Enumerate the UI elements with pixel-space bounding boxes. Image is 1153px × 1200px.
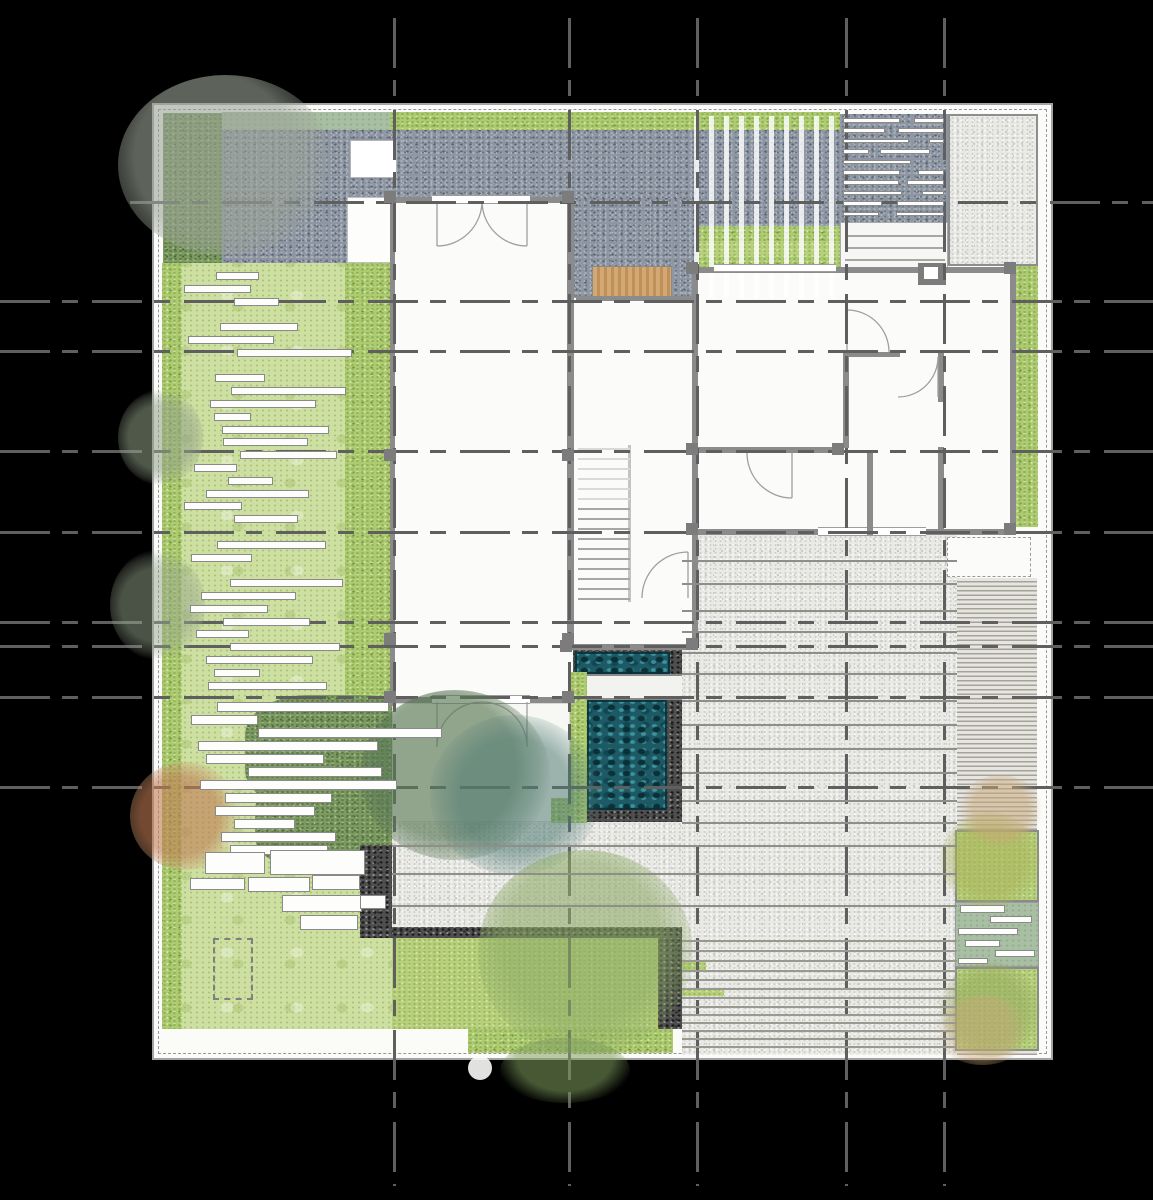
stone-plank	[897, 201, 944, 206]
terrace-step-line	[682, 652, 957, 654]
site-plan	[0, 0, 1153, 1200]
structural-pier	[686, 523, 698, 535]
stone-plank	[843, 201, 882, 206]
stepping-stone	[958, 958, 988, 964]
terrace-step-line	[682, 772, 957, 774]
grid-line-h2	[0, 350, 1153, 353]
stepping-stone	[228, 477, 274, 485]
structural-pier	[1004, 523, 1016, 535]
stepping-stone	[221, 832, 336, 842]
terrace-step-line	[682, 583, 957, 585]
stepping-stone	[198, 741, 378, 751]
terrace-step-line	[682, 724, 957, 726]
stepping-stone	[222, 426, 329, 434]
stair-tread	[578, 588, 630, 590]
stepping-stone	[215, 374, 265, 382]
structural-pier	[686, 443, 698, 455]
stepping-stone	[258, 728, 442, 738]
stair-tread-upper	[578, 498, 630, 500]
stepping-stone	[237, 349, 353, 357]
stepping-stone	[965, 940, 1000, 947]
stepping-stone	[231, 387, 346, 395]
stone-plank	[843, 170, 900, 175]
pool-header-channel	[575, 652, 670, 674]
stepping-stone	[196, 630, 249, 638]
terrace-step-line	[682, 748, 957, 750]
terrace-step-line	[682, 822, 957, 824]
structural-pier	[1004, 262, 1016, 274]
stone-plank	[896, 212, 944, 217]
stair-tread	[578, 538, 630, 540]
stepping-stone	[184, 285, 251, 293]
stone-plank	[843, 191, 902, 196]
stepping-stone	[217, 702, 389, 712]
terrace-step-line	[682, 610, 957, 612]
stair-tread	[578, 518, 630, 520]
stone-plank	[843, 149, 869, 154]
patio-paver	[270, 850, 365, 875]
tree-gray-west1	[118, 390, 203, 485]
stepping-stone	[230, 643, 340, 651]
structural-pier	[832, 443, 844, 455]
structural-pier	[562, 449, 574, 461]
stone-plank	[843, 180, 899, 185]
gravel-feature-slab	[350, 140, 397, 178]
terrace-step-line	[682, 997, 957, 999]
stepping-stone	[206, 490, 309, 498]
stair-tread	[578, 528, 630, 530]
stepping-stone	[194, 464, 237, 472]
stone-plank	[843, 139, 909, 144]
structural-pier	[384, 191, 396, 203]
tree-court-spill	[500, 1038, 630, 1103]
structural-pier	[686, 262, 698, 274]
stone-plank	[843, 118, 900, 123]
terrace-step-line	[682, 700, 957, 702]
stair-tread-upper	[578, 478, 630, 480]
stepping-stone	[191, 554, 253, 562]
stepping-stone	[220, 323, 297, 331]
stone-plank	[898, 128, 944, 133]
stepping-stone	[200, 780, 397, 790]
window-north-east	[714, 264, 836, 272]
grid-line-h4	[0, 531, 1153, 534]
stepping-stone	[990, 916, 1032, 923]
patio-paver	[205, 852, 265, 874]
stepping-stone	[206, 754, 324, 764]
stepping-stone	[995, 950, 1035, 957]
stair-tread-upper	[578, 488, 630, 490]
tree-court-large	[478, 850, 693, 1055]
structural-pier	[384, 633, 396, 645]
stepping-stone	[223, 438, 308, 446]
entry-walkway	[347, 197, 392, 263]
terrace-step-line	[392, 873, 957, 875]
stair-tread-upper	[578, 468, 630, 470]
terrace-step-line	[682, 631, 957, 633]
terrace-step-line	[682, 1014, 957, 1016]
stone-plank	[843, 160, 911, 165]
patio-paver	[190, 878, 245, 890]
structural-pier	[560, 640, 572, 652]
stair-tread	[578, 578, 630, 580]
stepping-stone	[201, 592, 296, 600]
structural-pier	[562, 691, 574, 703]
terrace-step-line	[682, 1022, 957, 1024]
terrace-step-line	[682, 970, 957, 972]
grid-line-v3	[696, 18, 699, 1186]
stepping-stone	[214, 413, 251, 421]
stair-tread	[578, 508, 630, 510]
terrace-step-line	[392, 905, 957, 907]
terrace-step-line	[682, 979, 957, 981]
tree-gray-nw	[118, 75, 333, 255]
stone-plank	[907, 180, 944, 185]
stepping-stone	[225, 793, 332, 803]
terrace-step-line	[682, 800, 957, 802]
structural-pier	[384, 691, 396, 703]
stepping-stone	[217, 541, 326, 549]
stepping-stone	[223, 618, 309, 626]
stone-plank	[843, 128, 885, 133]
terrace-step-line	[682, 560, 957, 562]
canopy-dashed-outline	[947, 537, 1031, 577]
patio-paver	[300, 915, 358, 930]
terrace-step-line	[682, 1046, 957, 1048]
stepping-stone	[191, 715, 258, 725]
stepping-stone	[240, 451, 336, 459]
terrace-step-line	[682, 1038, 957, 1040]
terrace-step-line	[682, 950, 957, 952]
patio-paver	[282, 895, 362, 912]
stair-tread	[578, 598, 630, 600]
pier-entry-core	[924, 267, 938, 279]
timber-threshold-deck	[592, 266, 672, 297]
tree-tan-east	[958, 775, 1043, 845]
partition-v2	[867, 453, 873, 535]
stepping-stone	[234, 819, 296, 829]
stepping-stone	[214, 669, 260, 677]
utility-dashed-outline	[213, 938, 253, 1000]
stepping-stone	[958, 928, 1018, 935]
stone-plank	[918, 170, 944, 175]
stepping-stone	[184, 502, 242, 510]
terrace-step-line	[682, 960, 957, 962]
border-band-south	[162, 1029, 468, 1052]
stepping-stone	[190, 605, 268, 613]
stepping-stone	[210, 400, 315, 408]
stepping-stone	[234, 298, 279, 306]
stepping-stone	[960, 905, 1005, 913]
patio-paver	[312, 875, 360, 890]
steps-north	[840, 222, 948, 268]
gravel-terrace-ne	[948, 114, 1038, 266]
terrace-step-line	[392, 845, 957, 847]
structural-pier	[562, 191, 574, 203]
stepping-stone	[188, 336, 274, 344]
patio-paver	[248, 877, 310, 892]
stone-plank	[929, 139, 944, 144]
stair-tread-upper	[578, 448, 630, 450]
grid-line-h1	[0, 300, 1153, 303]
stepping-stone	[234, 515, 297, 523]
stepping-stone	[216, 272, 258, 280]
terrace-step-line	[682, 988, 957, 990]
stair-tread-upper	[578, 458, 630, 460]
stair-tread	[578, 548, 630, 550]
terrace-step-line	[682, 1030, 957, 1032]
stepping-stone	[230, 579, 343, 587]
stair-tread	[578, 568, 630, 570]
stepping-stone	[215, 806, 315, 816]
stone-plank	[914, 118, 944, 123]
stone-plank	[922, 191, 944, 196]
stone-plank	[880, 149, 929, 154]
grid-line-h7	[0, 696, 1153, 699]
patio-paver	[360, 895, 386, 909]
terrace-step-line	[682, 1006, 957, 1008]
terrace-step-line	[682, 940, 957, 942]
structural-pier	[686, 638, 698, 650]
terrace-step-line	[682, 673, 957, 675]
stair-tread	[578, 558, 630, 560]
stepping-stone	[206, 656, 312, 664]
stepping-stone	[248, 767, 381, 777]
stone-plank	[843, 212, 879, 217]
wall-east	[1010, 267, 1016, 535]
structural-pier	[384, 449, 396, 461]
blossom-dot	[468, 1056, 492, 1080]
stepping-stone	[208, 682, 327, 690]
